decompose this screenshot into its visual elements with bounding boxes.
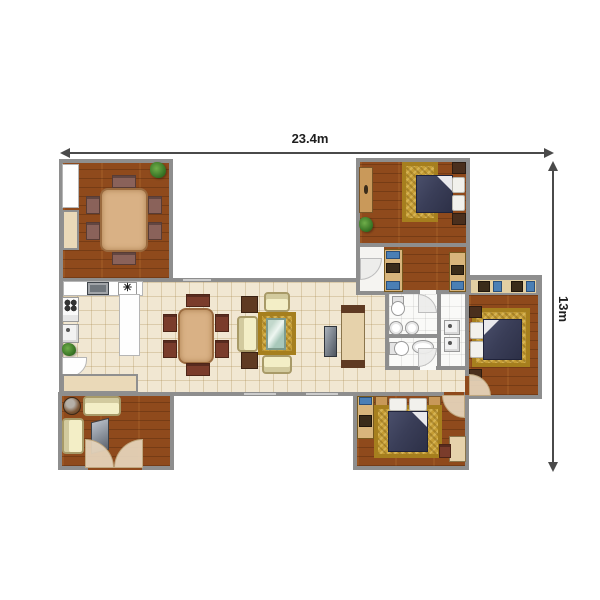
bedroom1-pillow: [452, 195, 465, 211]
bedroom1-nightstand: [452, 213, 466, 225]
cabinet-item: [359, 397, 372, 405]
bath-sink: [389, 321, 403, 335]
dining-chair: [148, 196, 162, 214]
door-gap-bath-lower: [420, 366, 436, 370]
dining-chair: [112, 175, 136, 188]
dining-wall-counter: [62, 164, 79, 208]
floor-plan-page: ✳ 23.4m 13m: [0, 0, 600, 600]
wardrobe-item: [386, 251, 400, 259]
bedroom3-pillow: [389, 398, 407, 411]
living-sofa: [262, 355, 292, 374]
closet-item: [478, 281, 490, 292]
wardrobe-item: [386, 263, 400, 273]
lounge-round-table: [63, 397, 81, 415]
bath-divider-vertical: [437, 290, 441, 370]
height-dimension-label: 13m: [556, 296, 571, 322]
bedroom3-chair: [439, 444, 451, 458]
side-table: [241, 296, 258, 313]
width-dimension-label: 23.4m: [255, 131, 365, 146]
window-bottom-wall-1: [243, 392, 277, 396]
dining-plant: [150, 162, 166, 178]
family-chair: [186, 363, 210, 376]
window-bottom-wall-2: [305, 392, 339, 396]
bedroom1-nightstand: [452, 162, 466, 174]
bedroom2-pillow: [470, 341, 484, 358]
living-armchair: [264, 292, 290, 312]
dining-chair: [148, 222, 162, 240]
bath-sink: [405, 321, 419, 335]
bedroom2-bed: [483, 319, 522, 360]
lounge-sofa: [83, 396, 121, 416]
sideboard: [341, 305, 365, 368]
closet-item: [493, 281, 502, 292]
toilet-lower: [389, 340, 409, 357]
dining-wall-cabinet: [62, 210, 79, 250]
dining-chair: [112, 252, 136, 265]
coffee-table: [266, 318, 286, 350]
dining-chair: [86, 222, 100, 240]
bedroom1-pillow: [452, 177, 465, 193]
bedroom3-bed: [388, 411, 428, 452]
family-chair: [186, 294, 210, 307]
tv-stand: [324, 326, 337, 357]
utility-appliance: [444, 337, 460, 352]
wardrobe-item: [451, 265, 464, 275]
bedroom1-bed: [416, 175, 453, 213]
kitchen-plant: [62, 343, 76, 356]
bedroom3-desk: [449, 436, 466, 462]
wardrobe-item: [386, 281, 400, 290]
door-gap-bath-upper: [420, 290, 436, 294]
side-table: [241, 352, 258, 369]
stove: [62, 297, 79, 322]
window-top-wall: [182, 278, 212, 282]
bedroom2-pillow: [470, 322, 484, 339]
cabinet-item: [359, 415, 372, 427]
bedroom1-dresser: [359, 167, 373, 213]
wardrobe-item: [451, 281, 464, 290]
kitchen-island: [119, 294, 140, 356]
family-chair: [163, 340, 177, 358]
family-chair: [215, 314, 229, 332]
lounge-sofa: [62, 418, 84, 454]
bedroom2-nightstand: [469, 306, 482, 318]
toilet-upper: [390, 296, 406, 316]
width-dimension-line: [62, 152, 552, 154]
closet-item: [511, 281, 523, 292]
utility-appliance: [444, 320, 460, 335]
bedroom3-pillow: [409, 398, 427, 411]
dining-table: [100, 188, 148, 252]
dishwasher: [62, 324, 79, 343]
living-sofa: [237, 316, 258, 352]
closet-item: [526, 281, 535, 292]
kitchen-sink: [87, 282, 109, 295]
bedroom1-plant: [359, 217, 373, 232]
height-dimension-line: [552, 163, 554, 470]
family-chair: [163, 314, 177, 332]
family-chair: [215, 340, 229, 358]
hall-closet: [62, 374, 138, 393]
dining-chair: [86, 196, 100, 214]
family-table: [178, 308, 214, 364]
